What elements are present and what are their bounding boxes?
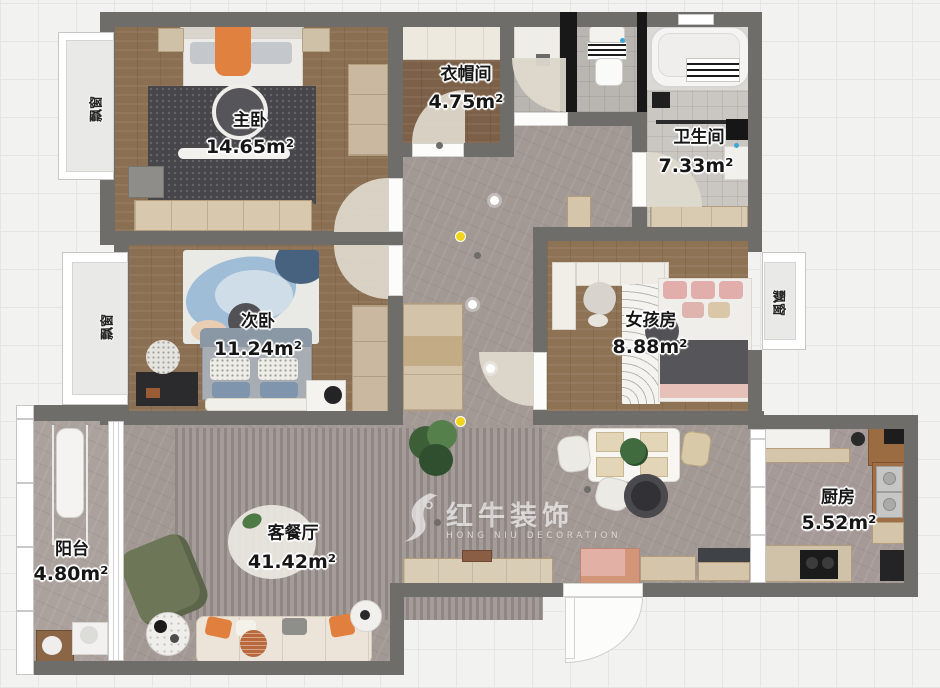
wall-kitchen-top	[748, 415, 918, 429]
wall-second-right	[388, 296, 403, 425]
ceiling-light-b	[468, 300, 477, 309]
entry-door-leaf	[565, 597, 575, 659]
master-bedroom-area: 14.65m²	[206, 136, 294, 158]
wall-bottom-entry-b	[643, 583, 918, 597]
bathroom-area: 7.33m²	[659, 155, 734, 177]
vanity-indicator	[734, 143, 739, 148]
spot-light-b	[474, 252, 481, 259]
tv-cabinet-decor	[462, 550, 492, 562]
wetroom-door-threshold	[514, 112, 568, 126]
bay-window-label-girls: 飘窗	[771, 290, 790, 316]
kitchen-area: 5.52m²	[802, 512, 877, 534]
living-dining-label: 客餐厅	[268, 519, 319, 544]
light-marker-yellow-b	[455, 416, 466, 427]
balcony-label: 阳台	[55, 535, 89, 560]
bay-window-label-second: 飘窗	[97, 314, 116, 340]
kitchen-sliding-door	[750, 429, 766, 583]
entry-cabinet-right	[698, 562, 750, 581]
girls-bed-foot	[660, 384, 748, 398]
master-side-wardrobe	[348, 64, 388, 156]
master-nightstand-left	[158, 28, 184, 52]
floor-plan: 主卧 14.65m² 衣帽间 4.75m² 卫生间 7.33m² 次卧 11.2…	[0, 0, 940, 688]
second-fan	[324, 386, 342, 404]
second-wardrobe	[352, 305, 388, 413]
wall-cloakroom-bottom-a	[395, 143, 412, 157]
second-pillow-blue-b	[260, 382, 298, 398]
bathroom-cabinet	[650, 206, 748, 228]
spot-light-d	[434, 519, 441, 526]
entry-door-threshold	[563, 583, 643, 597]
kitchen-label: 厨房	[821, 483, 855, 508]
toilet-indicator	[620, 38, 625, 43]
bathroom-label: 卫生间	[674, 123, 725, 148]
bathtub-control-panel	[686, 58, 740, 82]
master-side-table	[128, 166, 164, 198]
stove-burner-a	[806, 557, 818, 569]
dining-chair-white-a	[556, 434, 593, 474]
toilet-bowl	[595, 58, 623, 86]
glass-partition-right	[637, 12, 647, 112]
second-pillow-blue-a	[212, 382, 250, 398]
girls-pillow-d	[682, 302, 704, 318]
fridge	[880, 550, 904, 581]
balcony-window	[16, 405, 34, 675]
girls-pillow-e	[708, 302, 730, 318]
entry-cabinet	[640, 556, 696, 581]
stove-burner-b	[822, 557, 834, 569]
wall-girls-bottom	[533, 411, 764, 425]
balcony-basin	[42, 636, 62, 655]
second-pillow-b	[258, 358, 298, 380]
ceiling-light-c	[486, 364, 495, 373]
second-pillow-a	[210, 358, 250, 380]
cloakroom-label: 衣帽间	[441, 60, 492, 85]
dining-chair-wood	[680, 430, 712, 468]
master-nightstand-right	[302, 28, 330, 52]
coffee-table-decor-b	[170, 634, 179, 643]
hallway-cabinet-small	[567, 196, 591, 228]
wall-girls-left-a	[533, 241, 547, 352]
master-bedroom-label: 主卧	[233, 106, 267, 131]
girls-room-area: 8.88m²	[613, 336, 688, 358]
second-bedroom-area: 11.24m²	[214, 338, 302, 360]
kitchen-sink-b-drain	[883, 498, 896, 511]
living-dining-area: 41.42m²	[248, 551, 336, 573]
master-door-leaf	[388, 178, 403, 232]
big-plant	[405, 418, 461, 480]
wall-living-bottom	[22, 661, 403, 675]
pendant-lamp	[624, 474, 668, 518]
shower-fixture	[652, 92, 670, 108]
girls-pillow-a	[663, 281, 687, 299]
wall-cloakroom-bottom-b	[464, 143, 514, 157]
spot-light-a	[436, 142, 443, 149]
wall-right-upper	[748, 12, 762, 245]
second-bed-bench	[205, 398, 313, 411]
sofa-tray-table	[240, 630, 267, 657]
second-desk-item	[146, 388, 160, 398]
wall-girls-top	[533, 227, 762, 241]
wall-right-mid-a	[748, 241, 762, 252]
bathroom-door-leaf	[632, 152, 647, 207]
dining-plant	[620, 438, 646, 464]
wall-master-second-divider	[100, 231, 403, 245]
entry-shoe-cabinet	[580, 548, 640, 585]
wall-bottom-entry-a	[390, 583, 563, 597]
girls-shelf	[575, 262, 669, 286]
light-marker-yellow-a	[455, 231, 466, 242]
tv-panel	[698, 548, 750, 562]
master-pillow-right	[250, 42, 292, 64]
coffee-table-decor	[154, 620, 167, 633]
ceiling-light-a	[490, 196, 499, 205]
balcony-washer-drum	[80, 626, 98, 644]
master-orange-throw	[215, 24, 251, 76]
second-pouf	[146, 340, 180, 374]
wall-living-step	[390, 583, 404, 675]
drying-rack-rail-a	[52, 425, 54, 545]
wall-cloakroom-right	[500, 12, 514, 157]
kitchen-hob-item	[851, 432, 865, 446]
side-table-decor	[360, 610, 370, 620]
bathroom-window	[678, 14, 714, 25]
spot-light-c	[584, 486, 591, 493]
girls-footstool	[588, 314, 608, 327]
girls-desk-return	[552, 262, 576, 330]
kitchen-sink-a-drain	[883, 472, 896, 485]
second-bedroom-label: 次卧	[241, 307, 275, 332]
wall-second-bottom	[100, 411, 403, 425]
kitchen-cabinet-top	[764, 448, 850, 463]
master-bottom-wardrobe	[134, 200, 312, 231]
second-door-leaf	[388, 245, 403, 296]
entry-door-arc	[565, 597, 643, 663]
wall-kitchen-right	[904, 415, 918, 597]
girls-door-leaf	[533, 352, 547, 410]
balcony-sliding-door	[108, 421, 124, 661]
sofa-pillow-gray	[282, 618, 307, 635]
bay-window-label-master: 飘窗	[86, 96, 105, 122]
wall-balcony-top	[22, 405, 122, 421]
marble-coffee-table	[146, 612, 190, 656]
balcony-area: 4.80m²	[34, 563, 109, 585]
girls-pillow-c	[719, 281, 743, 299]
girls-room-label: 女孩房	[626, 306, 677, 331]
hallway-shoe-cabinet-mid	[404, 336, 462, 366]
cloakroom-area: 4.75m²	[429, 91, 504, 113]
drying-rack-rail-b	[86, 425, 88, 545]
kitchen-corner-appliance	[884, 428, 904, 444]
wall-top	[100, 12, 762, 27]
drying-rack	[56, 428, 84, 518]
wall-bathroom-left-a	[632, 112, 647, 152]
dining-mat-c	[596, 457, 624, 477]
girls-pillow-b	[691, 281, 715, 299]
kitchen-cabinet-right	[872, 522, 904, 544]
